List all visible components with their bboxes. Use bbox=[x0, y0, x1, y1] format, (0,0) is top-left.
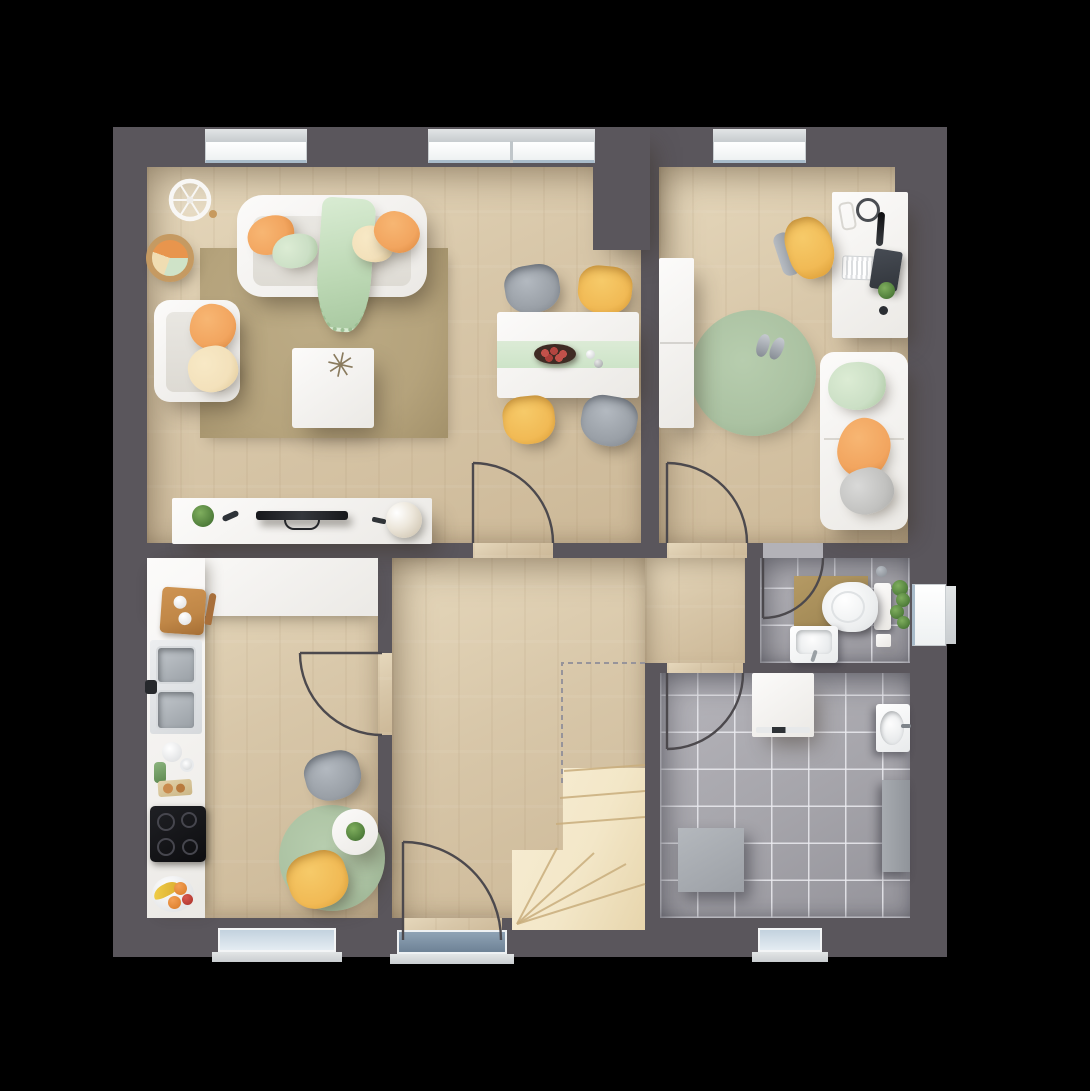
window-dining-sill bbox=[428, 129, 595, 141]
window-bathroom-east bbox=[912, 584, 946, 646]
openings bbox=[0, 0, 1090, 1091]
entry-door-south bbox=[397, 930, 507, 954]
window-dining-mullion bbox=[510, 141, 513, 163]
window-kitchen-south bbox=[218, 928, 336, 952]
floor-plan-canvas: ✳ bbox=[0, 0, 1090, 1091]
window-living-north bbox=[205, 141, 307, 163]
window-bathroom-sill bbox=[946, 586, 956, 644]
window-office-sill bbox=[713, 129, 806, 141]
window-utility-south bbox=[758, 928, 822, 952]
window-utility-sill bbox=[752, 952, 828, 962]
window-living-sill bbox=[205, 129, 307, 141]
window-office-north bbox=[713, 141, 806, 163]
window-kitchen-sill bbox=[212, 952, 342, 962]
entry-door-step bbox=[390, 954, 514, 964]
